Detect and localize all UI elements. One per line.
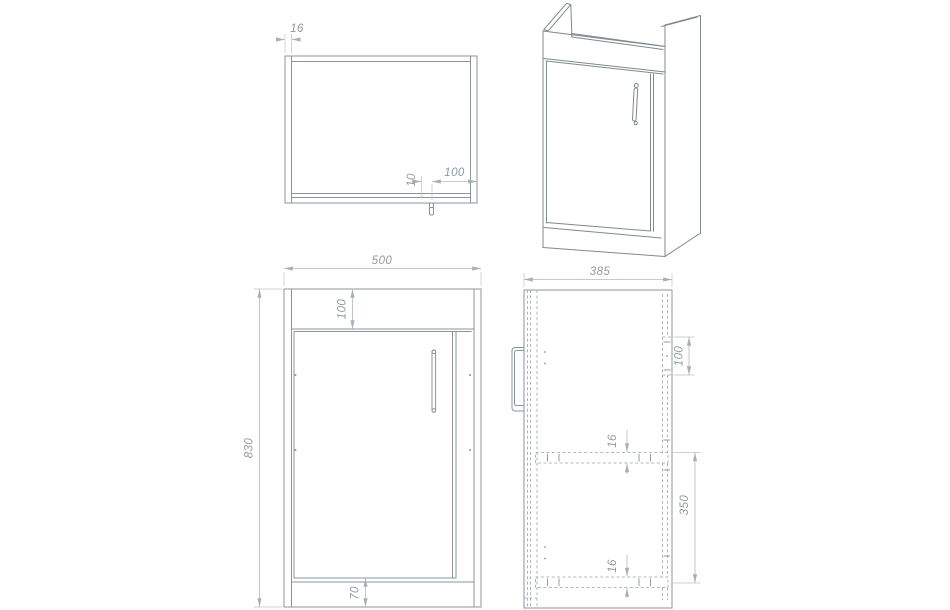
iso-carcass: [543, 3, 701, 256]
side-cabinet-outline: [524, 290, 672, 608]
dim-label-side-depth: 385: [590, 266, 611, 278]
dim-label-front-width: 500: [372, 255, 393, 267]
dim-plan-side-panel-thickness: 16: [276, 23, 304, 53]
dim-side-back-rail: 100: [674, 337, 695, 375]
front-door: [294, 332, 471, 579]
side-back-panel-hidden: [663, 294, 671, 600]
dim-side-shelf-thickness-bottom: 16: [607, 555, 627, 598]
side-back-rail-hidden: [663, 337, 673, 375]
dim-label-panel-thickness: 16: [290, 23, 304, 35]
dim-plan-handle-gap: 10: [406, 173, 422, 198]
dim-label-handle-gap: 10: [406, 173, 418, 187]
dim-label-side-back-rail: 100: [674, 346, 686, 367]
plan-cabinet-outline: [285, 56, 477, 203]
side-bottom-shelf-hidden: [536, 577, 669, 588]
dim-front-width: 500: [284, 255, 481, 286]
dim-label-front-top-rail: 100: [337, 299, 349, 320]
drawing-svg: 16 10 100: [0, 0, 950, 610]
dim-front-top-rail: 100: [337, 289, 353, 329]
dim-front-height: 830: [244, 289, 283, 607]
dim-label-front-height: 830: [244, 438, 256, 459]
plan-view: 16 10 100: [276, 23, 477, 215]
plan-door-knob: [430, 203, 434, 215]
dim-label-handle-inset: 100: [444, 167, 465, 179]
technical-drawing-sheet: 16 10 100: [0, 0, 950, 610]
dim-label-shelf-spacing: 350: [679, 495, 691, 516]
front-cabinet-outline: [284, 289, 481, 607]
side-door-hidden-lines: [524, 290, 546, 608]
dim-side-shelf-thickness-top: 16: [607, 430, 627, 474]
dim-label-shelf-thickness-bottom: 16: [607, 559, 619, 573]
side-view: 385 100 16 16 350: [512, 266, 701, 608]
front-door-handle: [432, 350, 436, 412]
iso-door: [544, 61, 663, 238]
iso-door-handle: [632, 84, 638, 125]
side-handle-profile: [512, 348, 524, 412]
dim-label-shelf-thickness-top: 16: [607, 434, 619, 448]
dim-label-front-plinth: 70: [350, 586, 362, 600]
side-middle-shelf-hidden: [536, 453, 669, 464]
isometric-view: [543, 3, 701, 256]
dim-side-shelf-spacing: 350: [672, 453, 701, 584]
dim-side-depth: 385: [524, 266, 672, 287]
front-view: 500 100 830 70: [244, 255, 482, 607]
